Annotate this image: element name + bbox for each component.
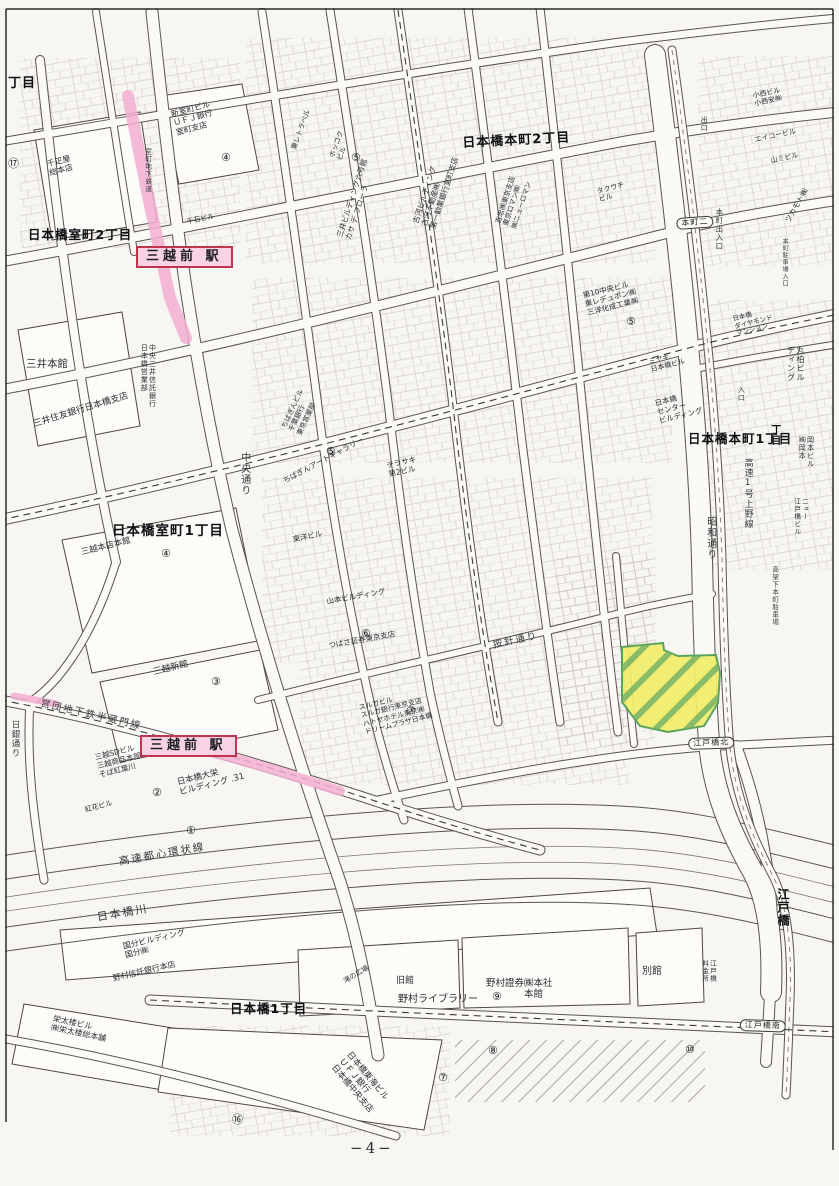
highlight-parcel — [622, 643, 720, 732]
scanned-map-page: 丁目日本橋室町2丁目日本橋本町2丁目日本橋室町1丁目日本橋本町1丁目日本橋1丁目… — [0, 0, 839, 1186]
map-canvas — [0, 0, 839, 1186]
map-content — [0, 8, 839, 1136]
parcel-hatch — [622, 643, 720, 732]
